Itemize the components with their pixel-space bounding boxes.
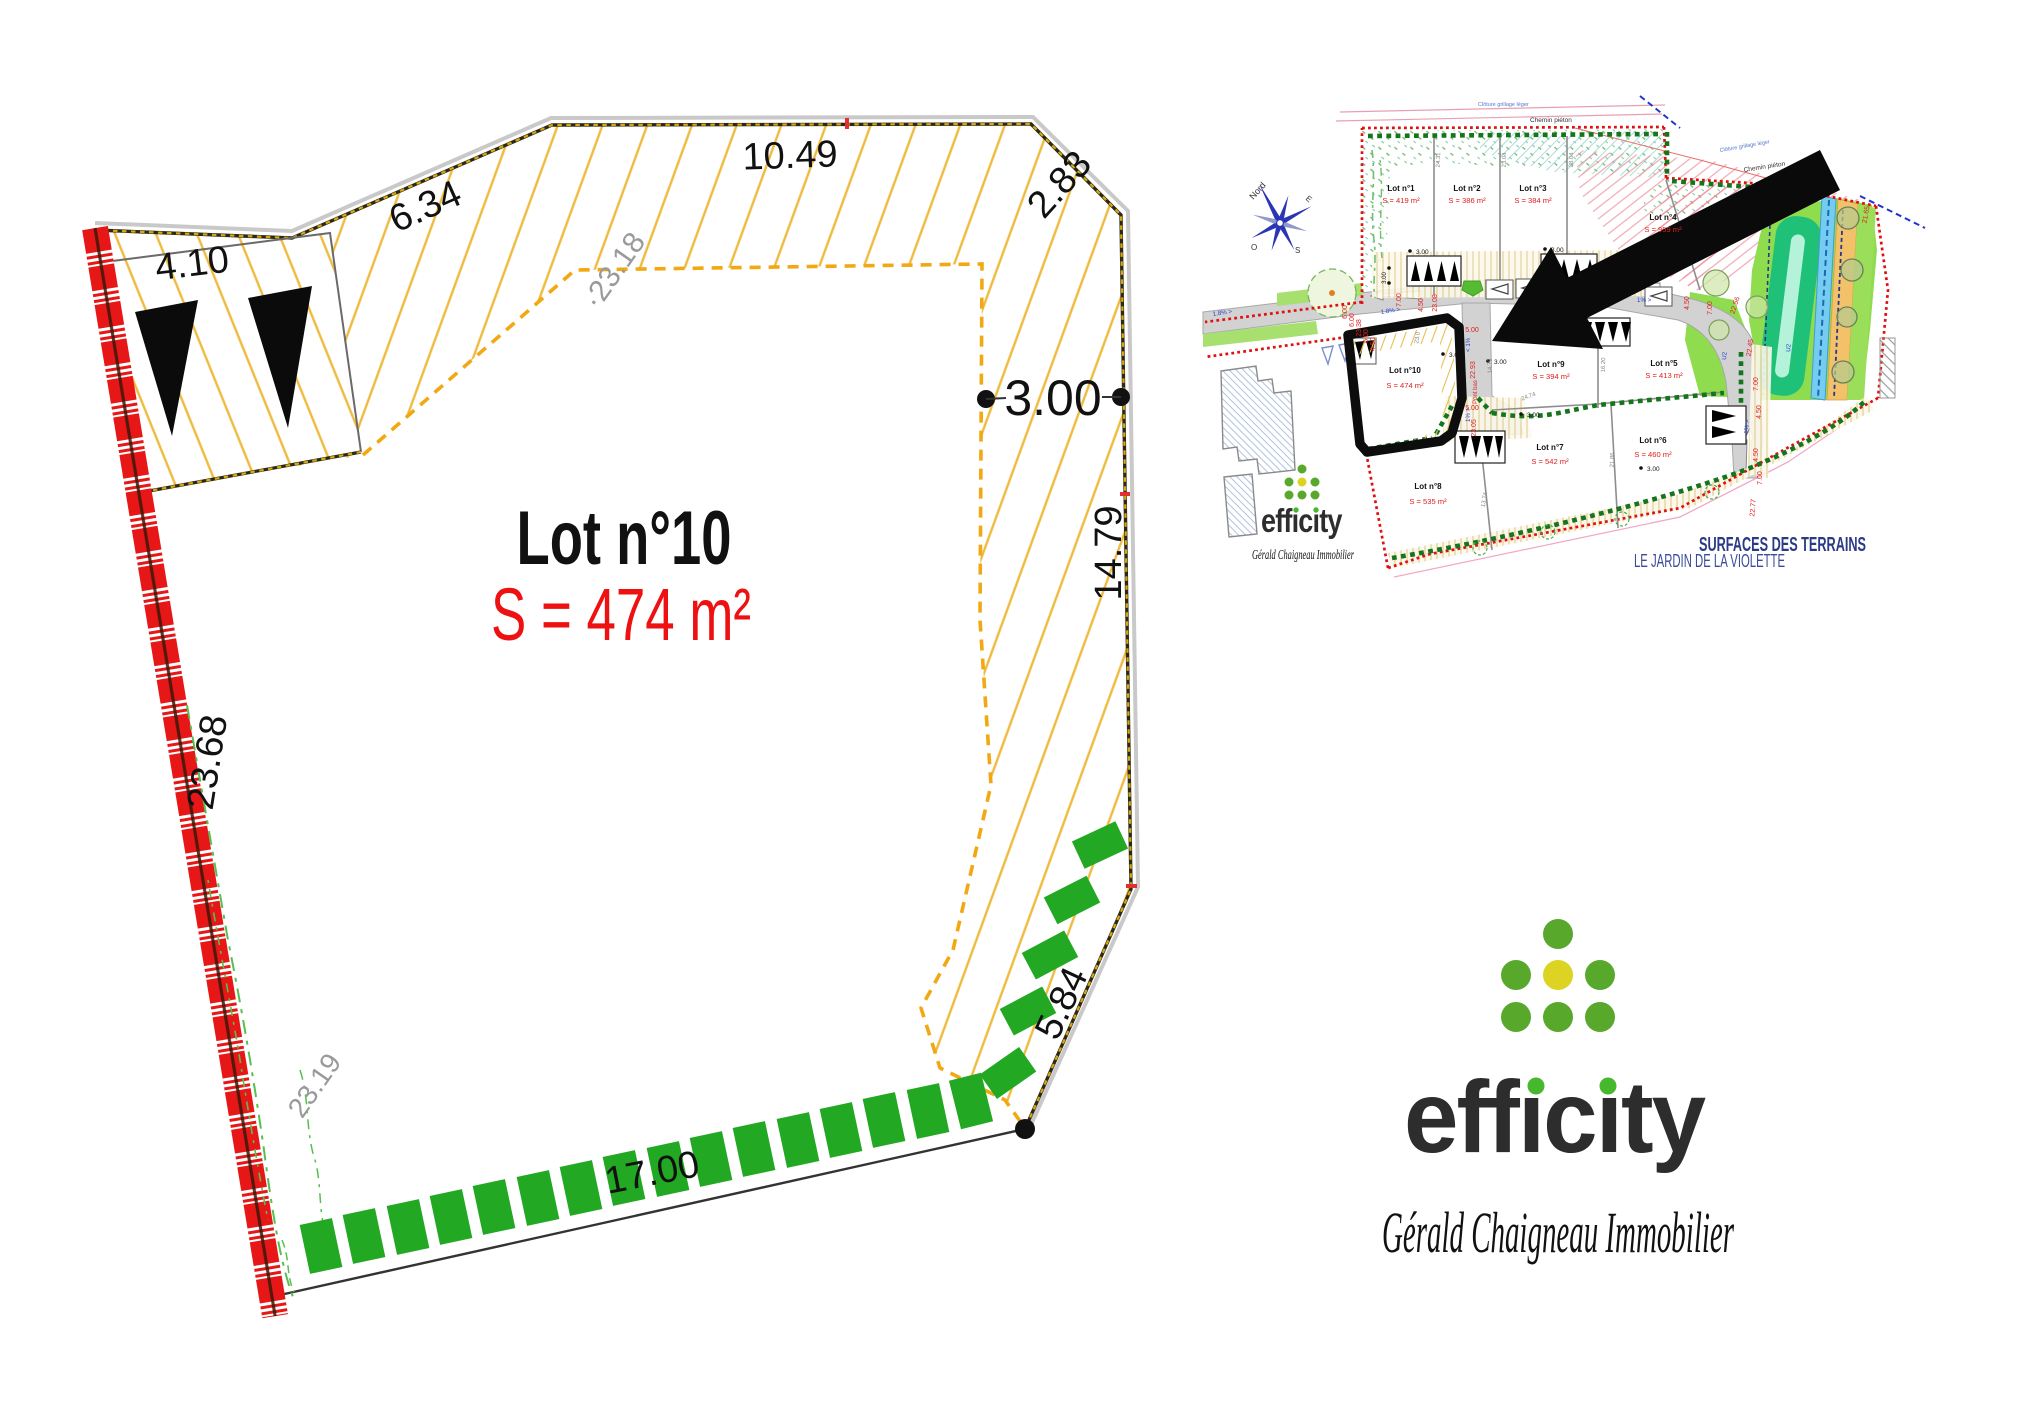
svg-text:7.00: 7.00 xyxy=(1757,471,1764,485)
svg-text:3.00: 3.00 xyxy=(1527,412,1540,419)
svg-text:Lot n°2: Lot n°2 xyxy=(1453,184,1481,193)
svg-text:S = 474 m²: S = 474 m² xyxy=(1386,381,1424,390)
svg-text:4.50: 4.50 xyxy=(1370,337,1377,351)
svg-text:23.04: 23.04 xyxy=(1502,152,1509,168)
svg-text:Gérald Chaigneau Immobilier: Gérald Chaigneau Immobilier xyxy=(1382,1200,1734,1265)
svg-text:1% >: 1% > xyxy=(1743,419,1751,434)
svg-text:3.00: 3.00 xyxy=(1494,359,1507,366)
svg-text:U2: U2 xyxy=(1785,343,1793,352)
svg-text:23.05: 23.05 xyxy=(1471,419,1478,437)
svg-text:S = 535 m²: S = 535 m² xyxy=(1409,497,1447,506)
svg-text:7.00: 7.00 xyxy=(1396,293,1403,307)
svg-text:5.00: 5.00 xyxy=(1465,327,1479,334)
svg-text:3.00: 3.00 xyxy=(1004,370,1101,426)
svg-text:4.50: 4.50 xyxy=(1684,296,1691,310)
svg-text:Lot n°5: Lot n°5 xyxy=(1650,359,1678,368)
svg-text:24.31: 24.31 xyxy=(1436,152,1443,168)
svg-text:3.00: 3.00 xyxy=(1551,247,1564,254)
svg-text:1% >: 1% > xyxy=(1637,297,1652,304)
svg-text:S = 959 m²: S = 959 m² xyxy=(1644,225,1682,234)
svg-text:S = 474 m²: S = 474 m² xyxy=(491,573,751,656)
svg-text:22.93: 22.93 xyxy=(1470,361,1477,379)
svg-text:4.50: 4.50 xyxy=(1756,405,1763,419)
svg-text:Lot n°9: Lot n°9 xyxy=(1537,360,1565,369)
svg-text:23.08: 23.08 xyxy=(1432,294,1439,312)
svg-text:Chemin piéton: Chemin piéton xyxy=(1530,117,1572,124)
svg-text:16.20: 16.20 xyxy=(1601,357,1608,373)
svg-text:effıcıty: effıcıty xyxy=(1404,1060,1707,1174)
svg-text:14.79: 14.79 xyxy=(1088,505,1130,600)
svg-text:< 1%: < 1% xyxy=(1465,337,1472,352)
svg-text:Pont bas: Pont bas xyxy=(1473,380,1479,404)
svg-text:U2: U2 xyxy=(1721,351,1729,360)
svg-text:6.00: 6.00 xyxy=(1363,329,1370,343)
svg-text:4.10: 4.10 xyxy=(153,239,232,290)
svg-text:LE JARDIN DE LA VIOLETTE: LE JARDIN DE LA VIOLETTE xyxy=(1634,551,1785,571)
svg-text:3.00: 3.00 xyxy=(1647,466,1660,473)
svg-text:S = 394 m²: S = 394 m² xyxy=(1532,372,1570,381)
svg-text:S = 413 m²: S = 413 m² xyxy=(1645,371,1683,380)
svg-text:4.50: 4.50 xyxy=(1753,448,1760,462)
svg-text:1% >: 1% > xyxy=(1465,407,1472,422)
svg-text:Lot n°8: Lot n°8 xyxy=(1414,482,1442,491)
svg-text:3.00: 3.00 xyxy=(1449,352,1462,359)
svg-text:21.86: 21.86 xyxy=(1610,452,1617,468)
svg-text:Lot n°6: Lot n°6 xyxy=(1639,436,1667,445)
svg-text:Clôture grillage léger: Clôture grillage léger xyxy=(1478,102,1529,108)
svg-text:S: S xyxy=(1295,246,1300,255)
svg-text:6.00: 6.00 xyxy=(1349,313,1356,327)
svg-text:Lot n°3: Lot n°3 xyxy=(1519,184,1547,193)
svg-text:O: O xyxy=(1251,243,1257,252)
svg-text:Lot n°1: Lot n°1 xyxy=(1387,184,1415,193)
svg-text:Lot n°10: Lot n°10 xyxy=(517,496,732,581)
svg-text:S = 384 m²: S = 384 m² xyxy=(1514,196,1552,205)
svg-text:S = 386 m²: S = 386 m² xyxy=(1448,196,1486,205)
svg-text:effıcıty: effıcıty xyxy=(1261,504,1343,540)
svg-text:Gérald Chaigneau Immobilier: Gérald Chaigneau Immobilier xyxy=(1252,548,1354,563)
svg-text:14.79: 14.79 xyxy=(1488,358,1494,374)
svg-text:Lot n°10: Lot n°10 xyxy=(1389,366,1421,375)
svg-text:S = 460 m²: S = 460 m² xyxy=(1634,450,1672,459)
svg-text:23.38: 23.38 xyxy=(1356,319,1363,337)
svg-text:23.04: 23.04 xyxy=(1569,152,1576,168)
svg-text:7.00: 7.00 xyxy=(1753,377,1760,391)
svg-text:3.00: 3.00 xyxy=(1416,249,1429,256)
svg-text:S = 419 m²: S = 419 m² xyxy=(1382,196,1420,205)
svg-text:4.50: 4.50 xyxy=(1418,298,1425,312)
svg-text:10.49: 10.49 xyxy=(742,133,839,178)
svg-text:Lot n°7: Lot n°7 xyxy=(1536,443,1564,452)
svg-text:7.00: 7.00 xyxy=(1707,301,1714,315)
svg-text:Lot n°4: Lot n°4 xyxy=(1649,213,1677,222)
svg-text:S = 542 m²: S = 542 m² xyxy=(1531,457,1569,466)
svg-text:6.00: 6.00 xyxy=(1342,305,1349,319)
svg-text:3.00: 3.00 xyxy=(1382,272,1388,284)
